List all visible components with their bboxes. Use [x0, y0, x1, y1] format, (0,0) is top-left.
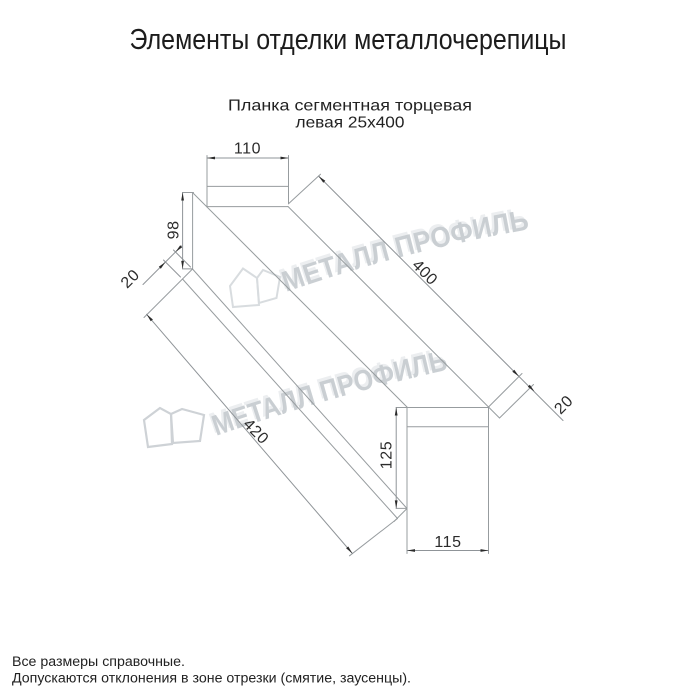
svg-text:левая 25х400: левая 25х400: [296, 115, 405, 132]
svg-text:МЕТАЛЛ ПРОФИЛЬ: МЕТАЛЛ ПРОФИЛЬ: [278, 205, 531, 299]
svg-text:20: 20: [551, 392, 576, 417]
svg-text:Все размеры справочные.: Все размеры справочные.: [12, 654, 185, 670]
svg-text:125: 125: [379, 441, 396, 470]
svg-text:400: 400: [408, 257, 440, 289]
svg-text:20: 20: [118, 266, 143, 291]
svg-text:115: 115: [434, 534, 461, 551]
svg-text:98: 98: [166, 220, 183, 239]
svg-text:Элементы отделки металлочерепи: Элементы отделки металлочерепицы: [130, 24, 567, 56]
svg-text:Допускаются отклонения в зоне: Допускаются отклонения в зоне отрезки (с…: [12, 670, 411, 686]
svg-text:Планка сегментная торцевая: Планка сегментная торцевая: [228, 98, 472, 115]
svg-text:110: 110: [234, 141, 261, 158]
